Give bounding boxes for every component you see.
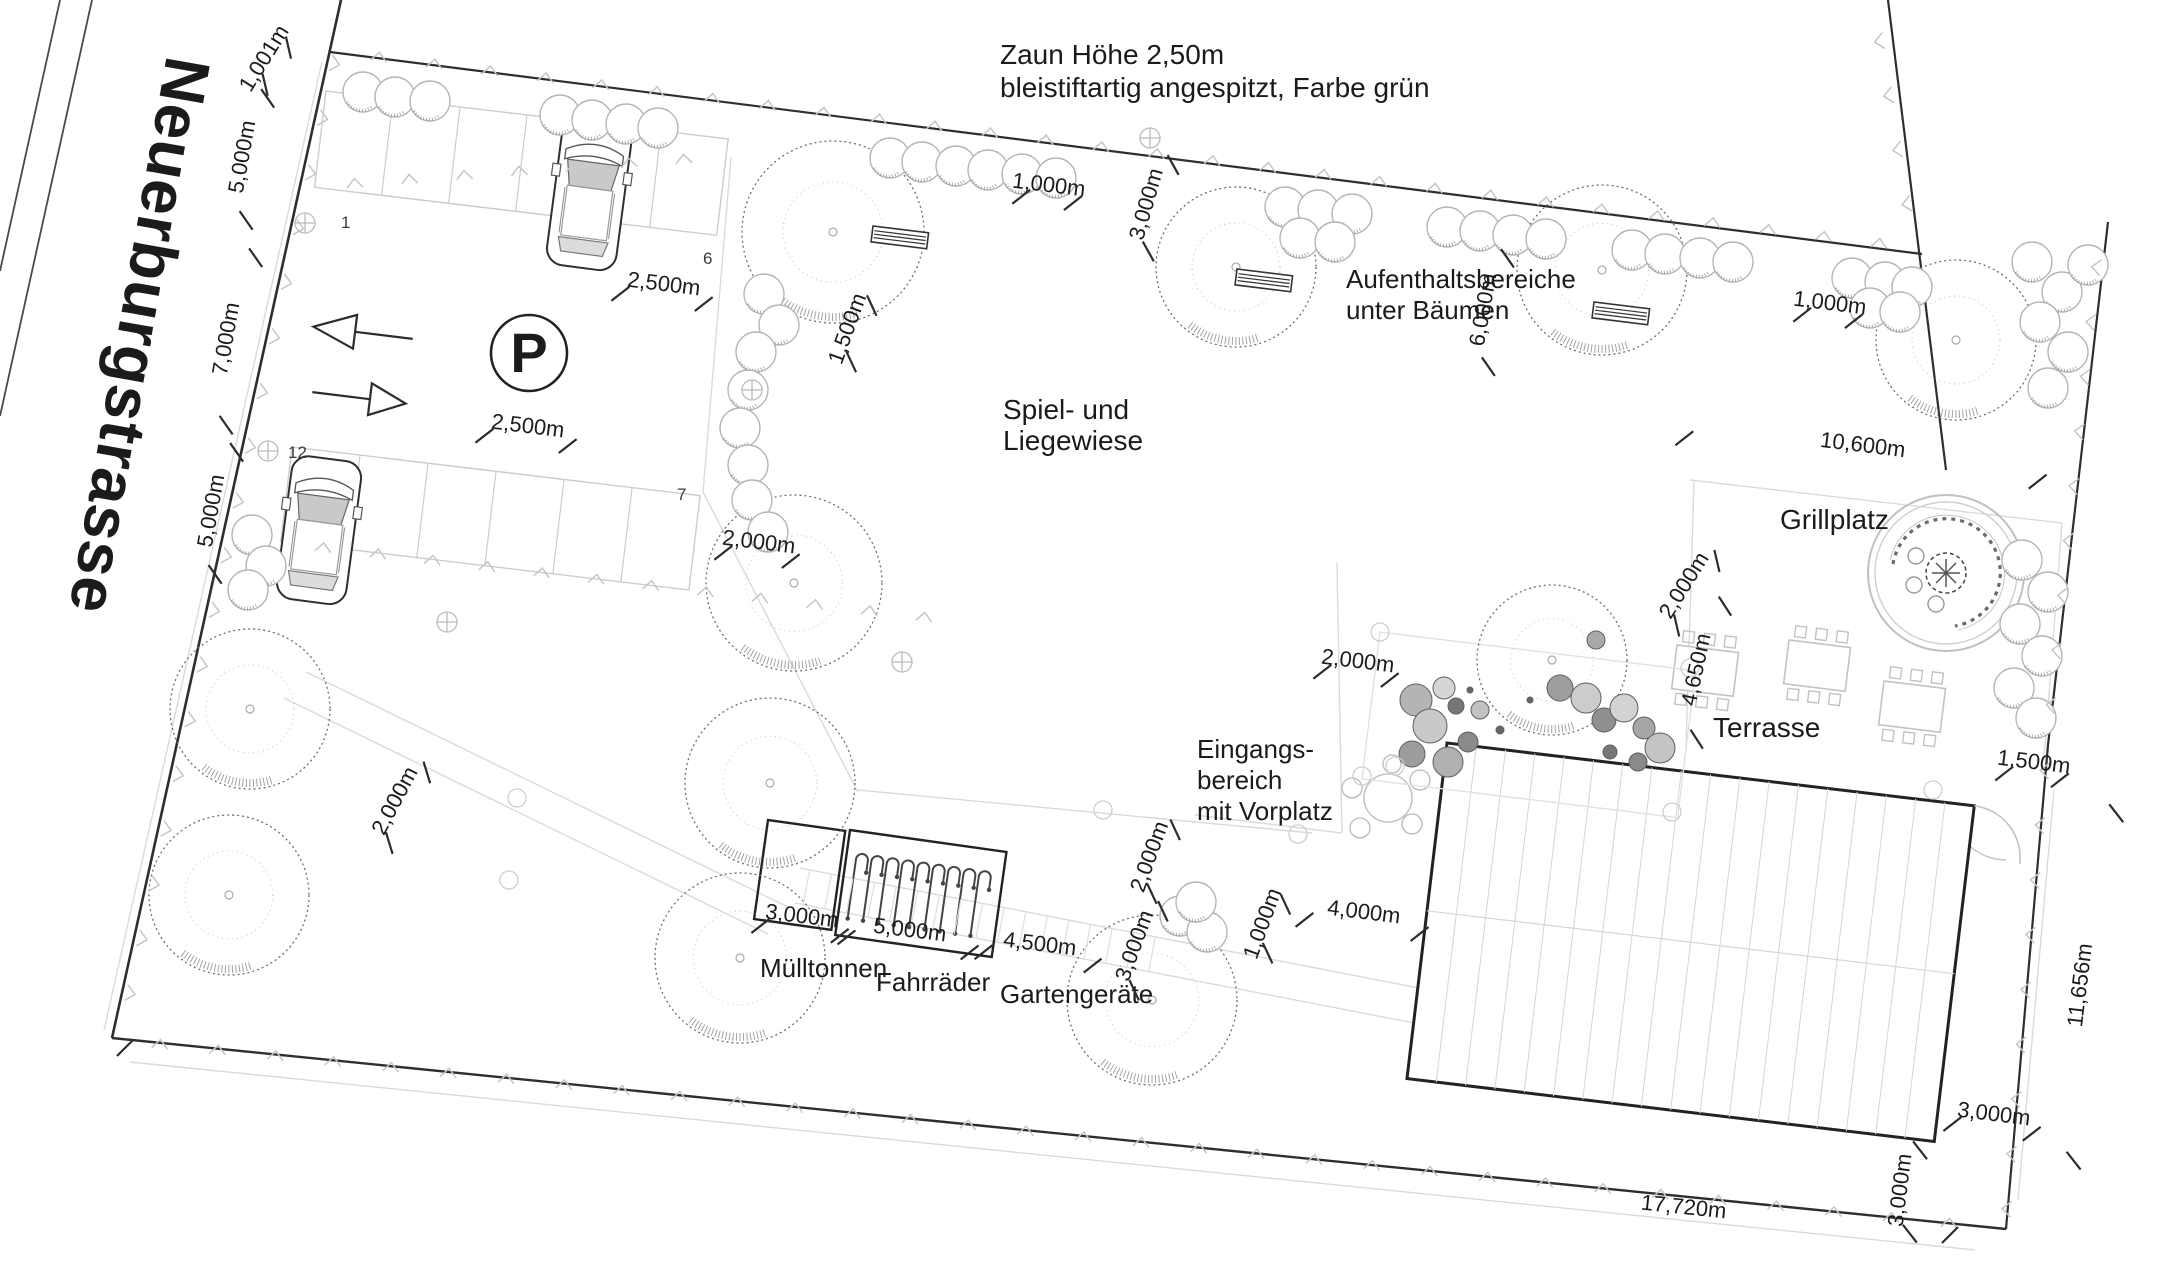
- dimension-label: 3,000m: [1943, 1095, 2043, 1142]
- stall-number: 12: [288, 443, 307, 462]
- fence-tick: [245, 438, 256, 454]
- fence-tick: [185, 711, 196, 727]
- fence-note-label: Zaun Höhe 2,50m bleistiftartig angespitz…: [1000, 39, 1430, 103]
- bush: [1526, 219, 1566, 259]
- bush: [2068, 245, 2108, 285]
- svg-text:1,500m: 1,500m: [1996, 745, 2072, 779]
- shrub: [1433, 677, 1455, 699]
- label-bins: Mülltonnen: [760, 953, 887, 983]
- fence-tick: [426, 59, 442, 69]
- dimension-label: 1,500m: [822, 288, 882, 372]
- site-plan: Neuerburgstrasse: [0, 0, 2172, 1277]
- paving-tick: [954, 899, 961, 934]
- dimension-label: 1,000m: [1238, 885, 1297, 966]
- svg-text:2,500m: 2,500m: [626, 267, 702, 301]
- dimension-label: 2,000m: [361, 752, 438, 854]
- svg-text:1,001m: 1,001m: [234, 20, 294, 95]
- shrub: [1603, 745, 1617, 759]
- shrub: [1629, 753, 1647, 771]
- tree: [706, 495, 882, 671]
- bush: [728, 445, 768, 485]
- dimension-label: 2,500m: [611, 265, 715, 313]
- bench: [871, 226, 929, 249]
- terrace-table: [1782, 625, 1853, 706]
- shrub: [1448, 698, 1464, 714]
- bush: [2022, 636, 2062, 676]
- svg-text:17,720m: 17,720m: [1640, 1190, 1728, 1224]
- building: [1407, 743, 2026, 1148]
- label-lawn: Spiel- und Liegewiese: [1003, 394, 1143, 456]
- dimension-label: 4,000m: [1296, 891, 1431, 943]
- dimension-label: 5,000m: [217, 86, 277, 230]
- bush: [638, 108, 678, 148]
- tree: [149, 815, 309, 975]
- fence-tick: [347, 179, 363, 189]
- label-grill: Grillplatz: [1780, 504, 1889, 535]
- shrub: [1547, 675, 1573, 701]
- fence-tick: [861, 606, 877, 616]
- fence-tick: [149, 875, 160, 891]
- label-bikes: Fahrräder: [876, 967, 990, 997]
- fence-tick: [697, 587, 713, 597]
- fence-tick: [269, 328, 280, 344]
- fence-tick: [257, 383, 268, 399]
- fence-tick: [305, 164, 316, 180]
- stall-number: 6: [703, 249, 712, 268]
- path-marker-icon: [508, 789, 526, 807]
- shrub: [1587, 631, 1605, 649]
- svg-text:10,600m: 10,600m: [1819, 427, 1907, 462]
- tree: [685, 698, 855, 868]
- fence-tick: [161, 821, 172, 837]
- bench: [1235, 269, 1293, 292]
- svg-text:3,000m: 3,000m: [1124, 165, 1168, 242]
- bench: [1592, 302, 1650, 325]
- paving-tick: [803, 870, 810, 905]
- parking-symbol: P: [491, 315, 567, 391]
- path-marker-icon: [500, 871, 518, 889]
- label-seating-area: Aufenthaltsbereiche unter Bäumen: [1346, 264, 1583, 325]
- dimension-label: 10,600m: [1675, 409, 2049, 490]
- dimension-label: 11,656m: [2045, 802, 2125, 1170]
- shrub: [1471, 701, 1489, 719]
- dimension-label: 1,001m: [234, 20, 303, 101]
- svg-text:3,000m: 3,000m: [764, 899, 840, 933]
- shrub: [1433, 747, 1463, 777]
- shrub: [1571, 683, 1601, 713]
- fence-tick: [209, 602, 220, 618]
- terrace-table: [1877, 666, 1948, 747]
- dimension-label: 3,000m: [751, 897, 851, 944]
- path-marker-icon: [1094, 801, 1112, 819]
- paving-tick: [868, 882, 875, 917]
- street-curb-line: [0, 0, 60, 271]
- fence-tick: [329, 55, 340, 71]
- dimension-label: 17,720m: [1640, 1190, 1728, 1224]
- survey-marker-icon: [437, 612, 457, 632]
- svg-text:11,656m: 11,656m: [2062, 942, 2097, 1028]
- street-neuerburgstrasse: Neuerburgstrasse: [0, 0, 224, 620]
- shrub: [1467, 687, 1473, 693]
- svg-text:2,000m: 2,000m: [366, 762, 423, 839]
- fence-tick: [916, 612, 932, 622]
- shrub: [1527, 697, 1533, 703]
- bush: [2028, 368, 2068, 408]
- bush: [2002, 540, 2042, 580]
- svg-text:5,000m: 5,000m: [223, 118, 260, 195]
- bush: [1880, 292, 1920, 332]
- fence-tick: [537, 73, 553, 83]
- fence-tick: [1875, 33, 1885, 49]
- parking-symbol-letter: P: [510, 321, 547, 384]
- fence-tick: [402, 175, 418, 185]
- dimension-label: 7,000m: [197, 245, 265, 434]
- fence-tick: [125, 985, 136, 1001]
- drive-direction-arrow-right: [310, 376, 407, 419]
- dimension-label: 2,500m: [475, 407, 579, 455]
- dimension-label: 2,000m: [1313, 643, 1401, 689]
- fence-tick: [457, 170, 473, 180]
- bush: [1315, 222, 1355, 262]
- survey-marker-icon: [892, 652, 912, 672]
- survey-marker-icon: [1140, 128, 1160, 148]
- svg-text:4,000m: 4,000m: [1326, 895, 1402, 929]
- fence-tick: [233, 493, 244, 509]
- shrub: [1413, 709, 1447, 743]
- svg-text:3,000m: 3,000m: [1956, 1097, 2032, 1131]
- fence-tick: [197, 657, 208, 673]
- svg-text:1,500m: 1,500m: [823, 290, 872, 368]
- bush: [2016, 698, 2056, 738]
- fence-tick: [482, 66, 498, 76]
- fence-tick: [1902, 195, 1912, 211]
- label-entrance: Eingangs- bereich mit Vorplatz: [1197, 734, 1333, 826]
- shrub: [1610, 694, 1638, 722]
- dimension-label: 1,000m: [1791, 286, 1868, 331]
- paving-tick: [976, 903, 983, 938]
- bush: [410, 81, 450, 121]
- boundary-northeast: [1888, 0, 1946, 470]
- dimension-label: 2,000m: [1649, 539, 1728, 636]
- survey-marker-icon: [258, 441, 278, 461]
- dimension-label: 1,500m: [1995, 745, 2072, 790]
- svg-text:2,500m: 2,500m: [490, 409, 566, 443]
- fence-tick: [221, 547, 232, 563]
- dimension-label: 3,000m: [1119, 150, 1183, 262]
- fence-tick: [173, 766, 184, 782]
- paving-tick: [1105, 929, 1112, 964]
- bush: [375, 77, 415, 117]
- svg-text:1,000m: 1,000m: [1238, 885, 1287, 963]
- bush: [736, 332, 776, 372]
- fire-pit-star-icon: [1932, 559, 1960, 587]
- stall-number: 1: [341, 213, 350, 232]
- dimension-label: 3,000m: [1881, 1139, 1929, 1243]
- bush: [2048, 332, 2088, 372]
- survey-marker-icon: [295, 213, 315, 233]
- dimension-label: 2,000m: [1123, 813, 1186, 904]
- fence-tick: [593, 80, 609, 90]
- path-marker-icon: [1924, 781, 1942, 799]
- shrub: [1645, 733, 1675, 763]
- bush: [2020, 302, 2060, 342]
- dimension-label: 2,000m: [714, 524, 802, 570]
- parked-car: [270, 454, 368, 607]
- fence-tick: [137, 930, 148, 946]
- fence-tick: [676, 154, 692, 164]
- survey-marker-icon: [742, 380, 762, 400]
- svg-text:2,000m: 2,000m: [1654, 547, 1714, 622]
- bush: [1645, 234, 1685, 274]
- paving-tick: [825, 874, 832, 909]
- svg-text:2,000m: 2,000m: [1320, 644, 1396, 678]
- bush: [720, 408, 760, 448]
- bush: [1713, 242, 1753, 282]
- door-swing-arc: [1968, 806, 2026, 864]
- drive-direction-arrow-left: [311, 310, 414, 356]
- bush: [1176, 882, 1216, 922]
- paving-tick: [1149, 937, 1156, 972]
- fence-tick: [1884, 87, 1894, 103]
- fence-tick: [1893, 141, 1903, 157]
- shrub: [1458, 732, 1478, 752]
- fence-tick: [2086, 315, 2096, 331]
- svg-text:7,000m: 7,000m: [207, 300, 244, 377]
- shrub: [1496, 726, 1504, 734]
- label-terrace: Terrasse: [1713, 712, 1820, 743]
- svg-text:2,000m: 2,000m: [1125, 818, 1174, 896]
- stall-number: 7: [677, 485, 686, 504]
- bush: [228, 570, 268, 610]
- fence-tick: [281, 274, 292, 290]
- bush: [1280, 218, 1320, 258]
- parking-area: P: [270, 91, 728, 607]
- bush: [2012, 242, 2052, 282]
- dimension-label: 1,000m: [1010, 168, 1087, 213]
- fence-tick: [807, 600, 823, 610]
- svg-text:3,000m: 3,000m: [1883, 1152, 1917, 1228]
